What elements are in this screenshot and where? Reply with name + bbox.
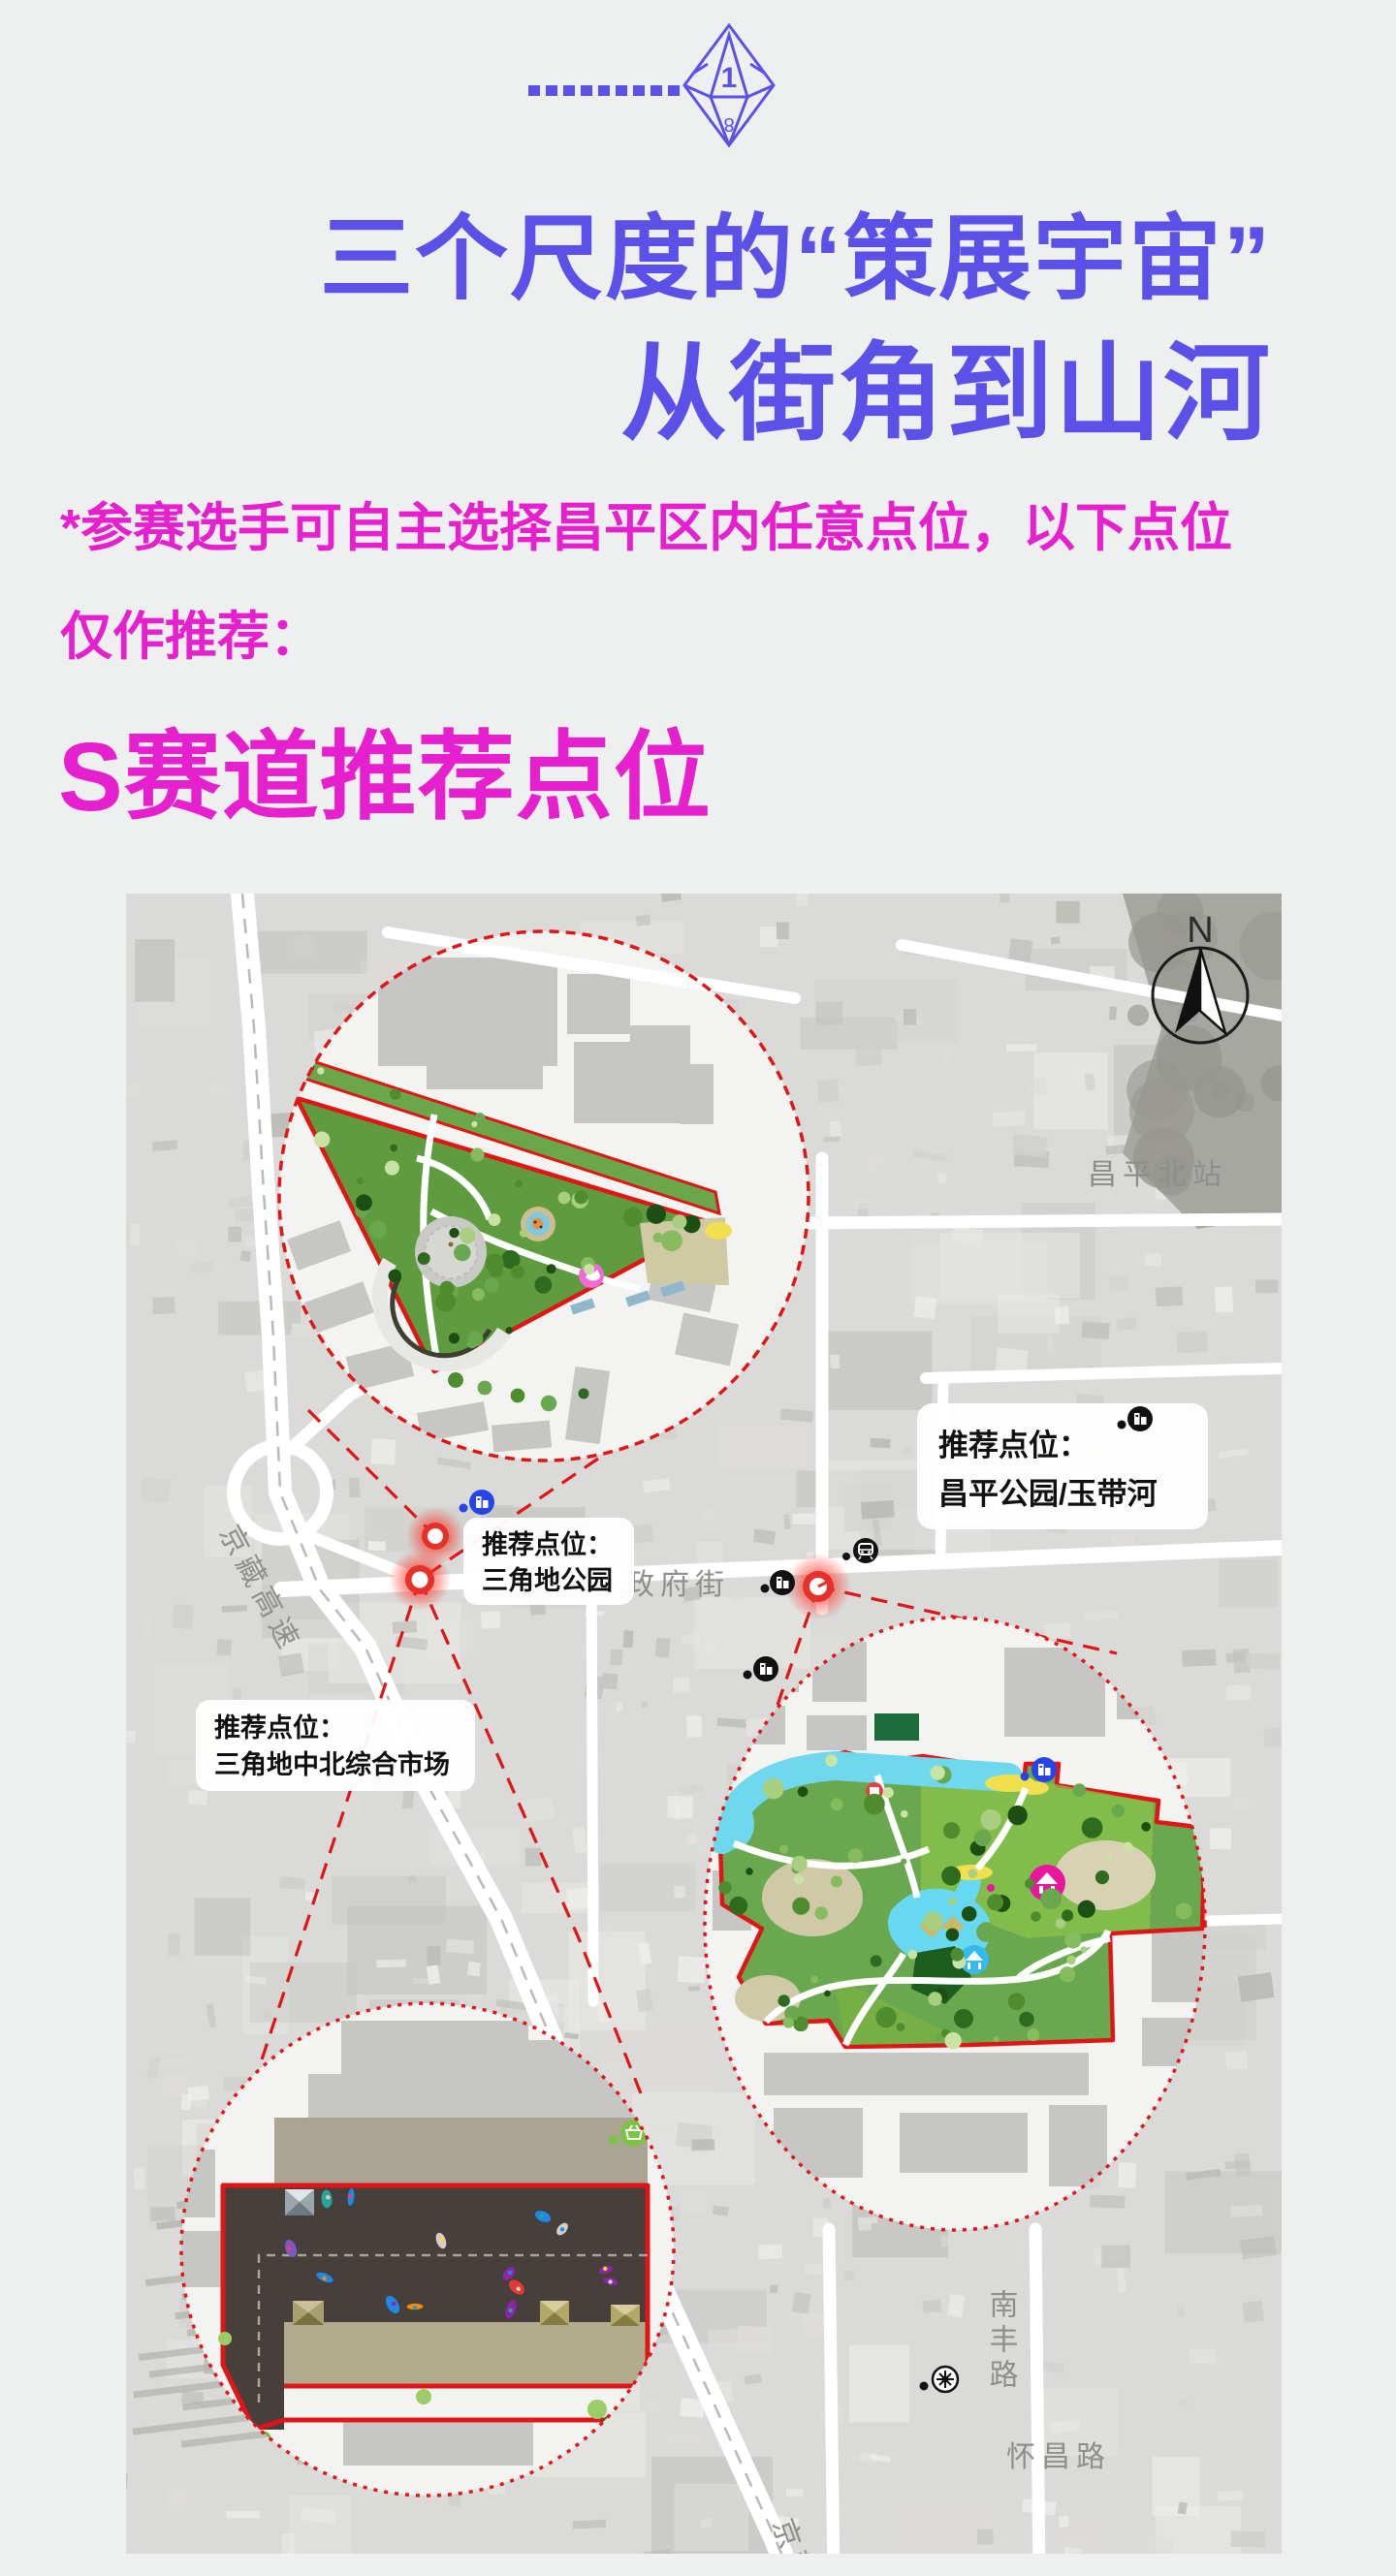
gem-number-bottom: 8 — [723, 113, 734, 135]
satellite-block — [162, 2059, 188, 2069]
road-v1-lower — [829, 2229, 834, 2554]
marker-changping-park[interactable] — [785, 1554, 851, 1619]
satellite-block — [126, 1083, 142, 1098]
satellite-block — [1090, 2195, 1125, 2209]
black-building-icon-2-tower — [767, 1667, 773, 1675]
satellite-block — [392, 1620, 417, 1634]
callout2-line2: 三角地中北综合市场 — [214, 1749, 450, 1779]
tree — [574, 1190, 587, 1204]
satellite-block — [142, 1620, 151, 1636]
satellite-block — [861, 1500, 895, 1520]
blue-building-icon-2-dot — [1021, 1773, 1030, 1781]
satellite-block — [181, 2094, 192, 2111]
tree — [968, 1869, 978, 1878]
tree — [471, 1121, 477, 1127]
satellite-patch — [892, 2500, 998, 2554]
satellite-block — [1226, 1685, 1252, 1701]
tree — [547, 1264, 556, 1273]
blue-building-icon-2-win — [1040, 1766, 1043, 1768]
satellite-block — [654, 1637, 670, 1657]
tree — [558, 1192, 571, 1205]
tree — [1078, 1901, 1095, 1918]
blue-building-icon-dot — [460, 1504, 468, 1513]
satellite-block — [1225, 2052, 1248, 2070]
satellite-block — [977, 2529, 994, 2545]
tree — [987, 1894, 1003, 1910]
satellite-block — [904, 1009, 916, 1024]
satellite-block — [686, 1834, 698, 1845]
note-line2: 仅作推荐： — [60, 611, 322, 663]
person-head — [322, 2277, 326, 2280]
tree — [924, 1911, 942, 1930]
satellite-patch — [332, 1876, 445, 1925]
satellite-block — [793, 1514, 816, 1524]
satellite-block — [293, 934, 314, 957]
decor-dashed-line — [528, 85, 680, 96]
satellite-block — [817, 1079, 840, 1102]
satellite-block — [737, 2326, 772, 2354]
tree — [1028, 2028, 1040, 2041]
person-head — [326, 2195, 330, 2199]
tree — [672, 1214, 686, 1229]
satellite-block — [623, 1630, 634, 1648]
callout-changping-park[interactable]: 推荐点位： 昌平公园/玉带河 — [917, 1403, 1208, 1529]
tree — [317, 1067, 324, 1074]
satellite-patch — [939, 1233, 1080, 1299]
tree — [449, 1333, 460, 1343]
tree — [746, 1868, 752, 1874]
tree — [831, 1875, 842, 1887]
black-building-icon-3-circle — [1127, 1406, 1153, 1431]
satellite-block — [1050, 937, 1060, 945]
tree — [1064, 1932, 1081, 1948]
tree — [385, 1161, 399, 1176]
satellite-block — [859, 2220, 872, 2231]
tree — [511, 1265, 524, 1278]
satellite-block — [777, 923, 789, 940]
satellite-block — [525, 1848, 542, 1867]
satellite-block — [732, 1589, 744, 1602]
person-head — [517, 2287, 521, 2291]
tree — [486, 1253, 504, 1272]
tree — [763, 1778, 784, 1800]
satellite-block — [1182, 1649, 1216, 1667]
tree — [806, 1802, 822, 1818]
tree — [814, 1906, 827, 1919]
tree — [941, 1867, 961, 1886]
tree — [1040, 1888, 1062, 1909]
market-stall-band-top — [274, 2118, 648, 2183]
black-building-icon-2-tower — [760, 1663, 766, 1675]
section-heading: S赛道推荐点位 — [58, 729, 712, 826]
satellite-block — [176, 1239, 201, 1259]
person-head — [440, 2238, 444, 2242]
tree — [949, 1898, 957, 1905]
tree — [798, 1786, 809, 1797]
satellite-block — [707, 1642, 718, 1654]
satellite-block — [641, 1701, 648, 1708]
callout3-line1: 推荐点位： — [938, 1429, 1089, 1462]
satellite-block — [348, 1477, 360, 1497]
tree — [928, 1992, 941, 2005]
satellite-patch — [135, 939, 174, 1002]
satellite-block — [1218, 2490, 1244, 2501]
tree — [936, 2034, 942, 2041]
satellite-block — [867, 1153, 886, 1171]
satellite-block — [152, 1297, 174, 1314]
satellite-block — [682, 1634, 701, 1645]
tree — [944, 2032, 961, 2049]
satellite-block — [168, 2490, 192, 2503]
black-building-icon-circle — [770, 1570, 795, 1595]
black-building-icon-3-dot — [1118, 1421, 1126, 1429]
satellite-block — [1110, 1534, 1135, 1548]
tree — [449, 1228, 459, 1238]
satellite-block — [815, 1001, 842, 1024]
callout1-line1: 推荐点位： — [482, 1529, 613, 1559]
tree — [470, 1147, 484, 1161]
satellite-block — [1006, 1044, 1037, 1052]
tree — [623, 1208, 643, 1227]
callout-market[interactable]: 推荐点位： 三角地中北综合市场 — [196, 1700, 475, 1791]
satellite-block — [481, 1612, 500, 1629]
satellite-patch — [218, 1302, 301, 1335]
satellite-block — [992, 1111, 1025, 1127]
tree — [779, 1845, 788, 1854]
tree — [1095, 1870, 1109, 1884]
recommended-locations-map[interactable]: 京藏高速 京藏高速 政府街 昌平北站 南丰路 怀昌路 — [126, 894, 1282, 2554]
callout3-line2: 昌平公园/玉带河 — [938, 1477, 1158, 1511]
tree — [931, 1766, 945, 1780]
satellite-block — [368, 1541, 386, 1551]
satellite-block — [188, 1790, 207, 1806]
tree — [534, 1276, 552, 1294]
tree — [485, 1278, 499, 1293]
person-head — [603, 2267, 607, 2271]
satellite-block — [228, 1227, 241, 1242]
tree — [511, 1389, 525, 1403]
marker-market[interactable] — [389, 1549, 451, 1611]
blue-building-icon-circle — [469, 1490, 494, 1515]
satellite-block — [686, 1715, 702, 1738]
black-building-icon-win — [778, 1579, 781, 1581]
gem-number: 1 — [721, 62, 738, 94]
satellite-block — [674, 1801, 682, 1819]
satellite-block — [937, 1173, 946, 1183]
wood-blob — [1127, 1005, 1149, 1026]
tree — [950, 1948, 964, 1962]
satellite-block — [688, 1986, 700, 1992]
satellite-block — [150, 2207, 175, 2221]
satellite-block — [940, 2233, 968, 2247]
satellite-block — [829, 1120, 841, 1137]
tree — [1072, 1783, 1086, 1797]
satellite-block — [407, 1875, 416, 1883]
person-head — [509, 2309, 513, 2312]
satellite-block — [999, 894, 1010, 903]
person-head — [392, 2302, 396, 2306]
satellite-block — [837, 2450, 857, 2465]
person-head — [413, 2306, 417, 2309]
blue-building-icon-2-tower — [1045, 1768, 1051, 1775]
satellite-block — [130, 1224, 140, 1245]
satellite-block — [611, 1649, 623, 1665]
tree — [314, 1131, 331, 1147]
tree — [1031, 1911, 1041, 1922]
tree — [785, 1837, 795, 1846]
satellite-block — [1144, 1253, 1161, 1266]
satellite-block — [674, 1678, 689, 1693]
satellite-block — [796, 894, 809, 906]
satellite-block — [1225, 1651, 1246, 1663]
satellite-block — [1109, 1275, 1128, 1293]
page-title-line1: 三个尺度的“策展宇宙” — [320, 213, 1272, 306]
tree — [1025, 1878, 1034, 1888]
satellite-block — [674, 1885, 686, 1898]
tree — [831, 1798, 843, 1810]
tree — [946, 1928, 959, 1940]
satellite-block — [1210, 1828, 1231, 1849]
road-label-nanfeng: 南丰路 — [985, 2289, 1018, 2394]
metro-icon-circle — [853, 1538, 878, 1563]
tree — [1123, 1842, 1132, 1852]
satellite-block — [679, 2189, 707, 2215]
satellite-block — [904, 1447, 911, 1456]
satellite-patch — [195, 1898, 251, 1956]
satellite-block — [555, 2007, 572, 2023]
black-building-icon-dot — [761, 1585, 770, 1593]
satellite-block — [279, 1876, 305, 1890]
tree — [468, 1332, 484, 1347]
satellite-block — [1226, 1796, 1251, 1810]
satellite-block — [636, 1989, 653, 2012]
satellite-block — [226, 2511, 260, 2519]
tree — [478, 1381, 492, 1396]
metro-icon-w2 — [868, 1551, 871, 1554]
satellite-block — [1255, 1279, 1278, 1293]
blue-building-icon-2-circle — [1031, 1757, 1057, 1782]
satellite-block — [427, 1946, 440, 1966]
satellite-block — [923, 2299, 942, 2312]
satellite-block — [629, 1957, 643, 1970]
tree — [488, 1213, 500, 1226]
satellite-block — [1082, 1321, 1110, 1339]
satellite-block — [1118, 2162, 1136, 2188]
tree — [908, 1950, 918, 1960]
wood-blob — [1193, 1066, 1245, 1117]
tree — [848, 1848, 863, 1863]
satellite-block — [1109, 1006, 1117, 1020]
tree — [369, 1221, 387, 1239]
tree — [871, 1955, 882, 1966]
page-title-line2: 从街角到山河 — [620, 341, 1272, 448]
satellite-block — [1117, 1317, 1137, 1330]
callout2-line1: 推荐点位： — [214, 1712, 345, 1743]
black-building-icon-2-circle — [753, 1656, 778, 1681]
tree — [1081, 1946, 1088, 1953]
map-canvas[interactable]: 京藏高速 京藏高速 政府街 昌平北站 南丰路 怀昌路 — [126, 894, 1282, 2554]
tree — [993, 2036, 999, 2042]
note-line1: *参赛选手可自主选择昌平区内任意点位，以下点位 — [60, 502, 1232, 554]
tree — [506, 1327, 513, 1334]
satellite-block — [703, 1506, 715, 1519]
tree — [661, 1230, 682, 1251]
satellite-block — [636, 915, 651, 927]
tree — [791, 1856, 807, 1871]
satellite-block — [1230, 2205, 1263, 2217]
satellite-block — [1026, 1079, 1047, 1096]
satellite-block — [823, 1137, 841, 1143]
satellite-block — [376, 1960, 405, 1967]
tree — [520, 1229, 527, 1237]
tree — [962, 1906, 977, 1922]
tree — [390, 1145, 397, 1152]
tree — [825, 1754, 838, 1767]
tree — [1008, 1806, 1028, 1825]
satellite-block — [823, 2198, 831, 2209]
satellite-block — [173, 1604, 194, 1629]
tree — [1112, 1805, 1126, 1818]
satellite-block — [141, 1477, 171, 1502]
tree — [1019, 2012, 1034, 2027]
tree — [472, 1288, 485, 1301]
tree — [1008, 1993, 1026, 2010]
satellite-block — [1043, 1621, 1071, 1639]
satellite-block — [701, 2518, 712, 2528]
black-building-icon-2-win — [762, 1665, 765, 1667]
road-label-changping-north-station: 昌平北站 — [1088, 1159, 1227, 1191]
blue-building-icon-2-tower — [1038, 1764, 1044, 1775]
person-head — [287, 2246, 291, 2249]
satellite-block — [1177, 1332, 1208, 1353]
black-building-icon-tower — [783, 1581, 789, 1588]
blue-building-icon-win — [478, 1498, 481, 1500]
satellite-block — [645, 2401, 661, 2412]
tree — [943, 1822, 960, 1838]
tree — [901, 1859, 906, 1865]
black-building-icon-3-tower — [1134, 1413, 1140, 1425]
tree — [584, 1264, 594, 1274]
satellite-block — [207, 1083, 224, 1100]
satellite-block — [1012, 1134, 1048, 1158]
tree — [980, 1809, 1000, 1830]
satellite-block — [1245, 1653, 1280, 1670]
road-label-huaichang: 怀昌路 — [1006, 2441, 1111, 2473]
satellite-block — [1179, 2400, 1188, 2406]
satellite-block — [1059, 2516, 1069, 2528]
tree — [976, 1922, 997, 1942]
satellite-block — [1156, 1286, 1184, 1306]
satellite-block — [1055, 1306, 1069, 1324]
road-v3 — [1035, 2229, 1039, 2554]
satellite-block — [758, 2244, 782, 2259]
tree — [897, 2023, 905, 2031]
satellite-block — [804, 2263, 822, 2275]
satellite-block — [616, 1702, 622, 1712]
satellite-block — [370, 1438, 396, 1464]
tree — [954, 2009, 973, 2028]
tree — [647, 1205, 666, 1224]
person-head — [540, 2214, 544, 2217]
tree — [1066, 1956, 1076, 1965]
tree — [883, 1787, 894, 1798]
satellite-block — [1238, 1972, 1275, 2002]
satellite-block — [786, 2489, 804, 2497]
tree — [875, 2007, 896, 2027]
satellite-block — [678, 1956, 707, 1983]
satellite-patch — [289, 2496, 351, 2554]
tree — [864, 1794, 885, 1815]
tree — [515, 1179, 523, 1187]
d8-gem-icon: 1 8 — [681, 21, 777, 149]
wood-blob — [1129, 1079, 1194, 1144]
satellite-block — [760, 927, 778, 947]
satellite-block — [168, 1933, 179, 1956]
blue-building-icon-tower — [483, 1500, 489, 1508]
road-v4 — [591, 1555, 593, 2001]
tree — [810, 1976, 818, 1984]
satellite-block — [830, 1355, 840, 1369]
person-head — [348, 2194, 352, 2198]
black-building-icon-3-win — [1136, 1415, 1139, 1417]
satellite-block — [941, 1052, 951, 1062]
satellite-block — [1101, 2246, 1130, 2268]
callout-triangle-park[interactable]: 推荐点位： 三角地公园 — [463, 1518, 634, 1605]
metro-icon-dot — [842, 1553, 850, 1560]
satellite-block — [870, 1438, 890, 1449]
road-label-zhengfu: 政府街 — [625, 1569, 730, 1601]
tree — [418, 1252, 430, 1265]
tree — [1176, 1902, 1192, 1919]
tree — [1062, 1909, 1073, 1921]
tree — [1082, 1817, 1103, 1838]
tree — [718, 1881, 732, 1895]
tree — [1060, 1966, 1075, 1982]
satellite-block — [467, 1962, 481, 1977]
satellite-block — [668, 2434, 702, 2444]
satellite-block — [413, 1978, 429, 1984]
satellite-block — [1242, 2301, 1264, 2323]
satellite-block — [162, 2076, 186, 2096]
tree — [389, 1270, 402, 1283]
satellite-block — [606, 1921, 614, 1935]
tree — [842, 1825, 856, 1838]
blue-building-icon-tower — [476, 1496, 482, 1508]
road-h4 — [1210, 1919, 1282, 1921]
tree — [460, 1228, 476, 1244]
satellite-block — [216, 1639, 232, 1656]
tree — [974, 1830, 991, 1846]
satellite-patch — [1009, 2516, 1106, 2554]
tree — [783, 2017, 794, 2027]
tree — [356, 1194, 372, 1210]
tree — [390, 1088, 400, 1099]
satellite-block — [133, 2168, 145, 2189]
metro-icon-w1 — [861, 1551, 864, 1554]
satellite-block — [753, 1529, 776, 1545]
satellite-block — [1215, 1286, 1233, 1312]
tree — [439, 1281, 454, 1296]
tree — [1105, 1855, 1111, 1861]
wood-blob — [1235, 1092, 1254, 1112]
satellite-block — [1231, 2530, 1265, 2547]
satellite-block — [770, 2285, 777, 2294]
black-building-icon-tower — [777, 1577, 782, 1588]
tree — [794, 1874, 804, 1884]
tree — [448, 1372, 463, 1388]
tree — [901, 1810, 908, 1818]
callout1-line2: 三角地公园 — [482, 1565, 613, 1595]
